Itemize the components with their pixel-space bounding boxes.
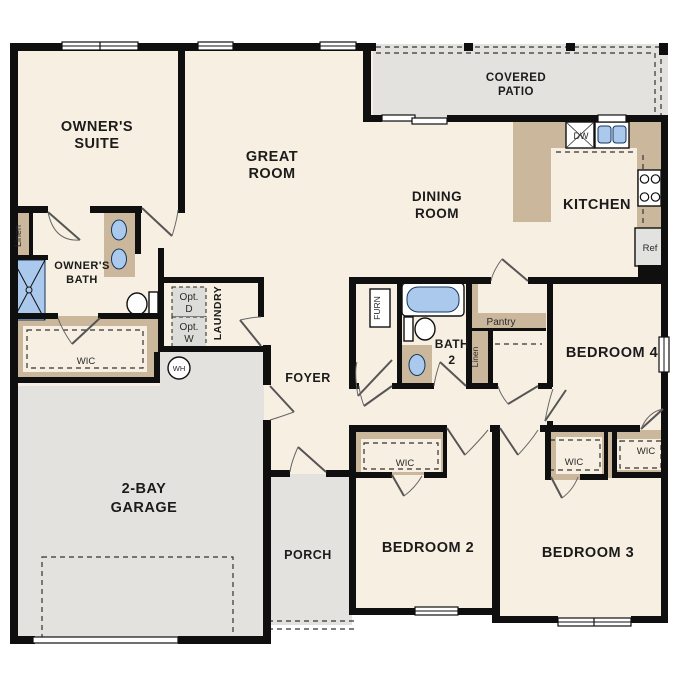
label-owners-suite: OWNER'S	[61, 119, 133, 135]
svg-text:ROOM: ROOM	[415, 206, 459, 221]
label-wic-bed4: WIC	[637, 446, 656, 457]
label-porch: PORCH	[284, 548, 332, 562]
label-bedroom-4: BEDROOM 4	[566, 345, 658, 361]
label-wic-bed3: WIC	[565, 457, 584, 468]
bath2-toilet-tank	[404, 317, 413, 341]
kitchen-peninsula-counter	[513, 122, 551, 222]
svg-text:ROOM: ROOM	[248, 166, 295, 182]
garage-door-opening	[33, 637, 178, 643]
label-water-heater: WH	[173, 364, 186, 373]
owners-sink-2-icon	[112, 249, 127, 269]
bath2-sink-icon	[409, 355, 425, 376]
label-bedroom-2: BEDROOM 2	[382, 540, 474, 556]
patio-slider-panel-1	[382, 115, 415, 121]
svg-text:D: D	[185, 304, 192, 315]
bath2-tub-basin	[407, 287, 459, 312]
svg-text:GARAGE: GARAGE	[111, 500, 178, 516]
owners-toilet-icon	[127, 293, 147, 315]
label-laundry: LAUNDRY	[212, 286, 224, 340]
kitchen-sink-basin-2	[613, 126, 626, 143]
label-bath-2: BATH	[435, 337, 469, 351]
bath2-toilet-icon	[415, 318, 435, 340]
shower-drain-icon	[26, 287, 32, 293]
label-wic-bed2: WIC	[396, 458, 415, 469]
label-linen-owners: Linen	[13, 225, 23, 247]
label-opt-dryer: Opt.	[180, 292, 199, 303]
label-refrigerator: Ref	[643, 243, 658, 254]
floor-plan-canvas: OWNER'S SUITE GREAT ROOM COVERED PATIO D…	[0, 0, 687, 687]
label-garage: 2-BAY	[122, 481, 167, 497]
svg-text:PATIO: PATIO	[498, 86, 534, 98]
svg-text:SUITE: SUITE	[74, 136, 119, 152]
svg-text:BATH: BATH	[66, 274, 98, 286]
floor-plan: OWNER'S SUITE GREAT ROOM COVERED PATIO D…	[0, 0, 687, 687]
label-linen-hall: Linen	[470, 346, 480, 367]
label-dishwasher: DW	[574, 131, 589, 141]
svg-text:2: 2	[448, 353, 455, 367]
label-opt-washer: Opt.	[180, 322, 199, 333]
wic-bed3-floor	[556, 437, 602, 474]
owners-toilet-tank	[149, 292, 158, 316]
svg-text:W: W	[184, 334, 194, 345]
label-pantry: Pantry	[487, 317, 516, 328]
label-furnace: FURN	[372, 296, 382, 320]
owners-sink-1-icon	[112, 220, 127, 240]
label-covered-patio: COVERED	[486, 72, 546, 84]
window-kitchen-sink	[598, 115, 626, 122]
kitchen-sink-basin-1	[598, 126, 611, 143]
label-wic-owners: WIC	[77, 356, 96, 367]
label-dining-room: DINING	[412, 189, 462, 204]
label-bedroom-3: BEDROOM 3	[542, 545, 634, 561]
label-foyer: FOYER	[285, 371, 331, 385]
patio-slider-panel-2	[412, 118, 447, 124]
label-owners-bath: OWNER'S	[54, 260, 110, 272]
label-great-room: GREAT	[246, 149, 298, 165]
label-kitchen: KITCHEN	[563, 197, 631, 213]
